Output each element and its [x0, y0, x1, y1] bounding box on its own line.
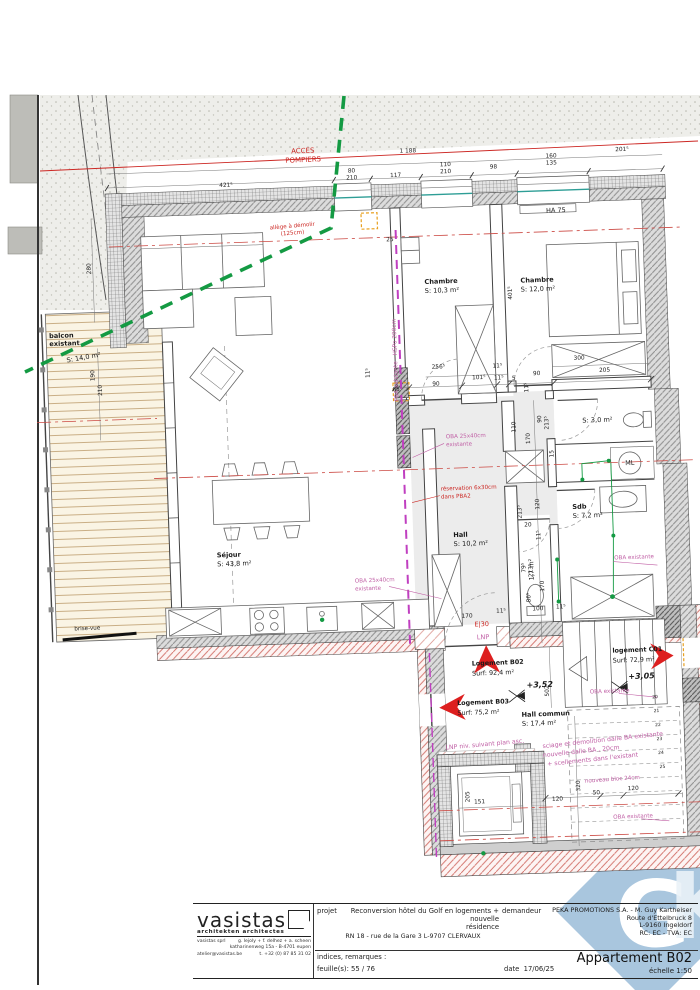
room-name: Hall: [453, 531, 468, 540]
dimension-label: 20: [652, 694, 658, 700]
shelf: [401, 237, 420, 264]
dimension-label: 117: [390, 173, 402, 179]
dimension-label: 65: [392, 387, 400, 393]
dimension-label: 110: [511, 421, 517, 433]
firm-partners: g. lejoly + f. delhez + a. scheen: [238, 939, 311, 944]
dimension-label: 151: [474, 799, 486, 805]
dimension-label: 86⁵: [525, 592, 532, 603]
notes-label: indices, remarques :: [317, 953, 499, 961]
dimension-label: 210: [346, 175, 358, 181]
bed: [546, 242, 641, 337]
dimension-label: 300: [574, 355, 586, 361]
dimension-label: 11⁵: [494, 374, 505, 381]
annotation: HA 75: [546, 206, 566, 215]
project-label: projet: [317, 907, 337, 915]
dimension-label: 23: [657, 736, 663, 742]
dimension-label: 135: [546, 160, 558, 166]
room-name: existant: [49, 339, 80, 348]
annotation: existante: [446, 441, 473, 448]
client-label: demandeur: [502, 907, 541, 915]
dimension-label: 120: [552, 796, 564, 802]
dimension-label: 280: [87, 263, 93, 275]
architect-logo-block: vasistas architekten architectes vasista…: [197, 910, 311, 957]
dimension-label: 11⁵: [496, 607, 507, 614]
dimension-label: 120: [628, 786, 640, 792]
room-area: S: 12,0 m²: [521, 284, 556, 293]
dimension-label: 160: [545, 153, 557, 159]
drawing-page: G K ACCES POMPIERS: [0, 0, 700, 990]
dimension-label: 213⁵: [543, 415, 550, 429]
dimension-label: 190: [90, 370, 96, 382]
firm-tagline: architekten architectes: [197, 929, 311, 937]
dimension-label: 205: [599, 368, 611, 374]
dimension-label: 100: [532, 606, 544, 612]
balcony: [38, 310, 172, 642]
kitchen-cabinet: [169, 608, 222, 636]
room-area: S: 43,8 m²: [217, 559, 252, 568]
annotation: LNP: [477, 633, 490, 641]
washbasin: [600, 485, 647, 513]
dimension-label: 90: [432, 382, 440, 388]
dimension-label: 210: [98, 384, 104, 396]
dimension-label: 24: [658, 750, 664, 756]
room-area: S: 7,2 m²: [573, 511, 604, 520]
dimension-label: 201⁵: [615, 146, 629, 153]
dimension-label: 50: [593, 790, 601, 796]
dimension-label: 11⁵: [364, 367, 371, 378]
dimension-label: 205: [465, 791, 471, 803]
dimension-label: 421⁵: [219, 182, 233, 189]
dimension-label: 11⁵: [535, 530, 542, 541]
dimension-label: 213⁵: [516, 504, 523, 518]
annotation: dans PBA2: [441, 494, 471, 501]
hall-cabinet: [432, 554, 462, 627]
dimension-label: 25: [660, 764, 666, 770]
dimension-label: 90: [533, 371, 541, 377]
room-area: S: 10,2 m²: [453, 539, 488, 548]
dimension-label: 101⁵: [472, 374, 486, 381]
firm-phone: t. +32 (0) 87 85 31 02: [259, 952, 311, 957]
dimension-label: 80: [348, 168, 356, 174]
project-name: Reconversion hôtel du Golf en logements …: [349, 907, 499, 931]
scale-label: échelle 1:50: [649, 967, 692, 975]
project-address: RN 18 - rue de la Gare 3 L-9707 CLERVAUX: [327, 933, 499, 940]
dimension-label: 401⁵: [507, 286, 514, 300]
dimension-label: 11⁵: [556, 603, 567, 610]
dimension-label: 90: [537, 415, 543, 423]
room-name: Chambre: [424, 277, 458, 286]
dimension-label: 110: [440, 162, 452, 168]
date-field: date 17/06/25: [504, 965, 554, 973]
room-area: S: 17,4 m²: [522, 719, 557, 728]
room-name: Séjour: [217, 551, 242, 560]
dimension-label: 170: [461, 614, 473, 620]
apartment-area: Surf: 72,9 m²: [613, 655, 656, 664]
level-label: +3,05: [628, 671, 655, 681]
firm-company: vasistas sprl: [197, 939, 226, 944]
firm-email: atelier@vasistas.be: [197, 952, 242, 957]
apartment-area: Surf: 75,2 m²: [457, 708, 500, 717]
title-block: vasistas architekten architectes vasista…: [193, 903, 698, 979]
dimension-label: 170: [540, 580, 546, 592]
dimension-label: 22: [655, 722, 661, 728]
dimension-label: 11⁵: [523, 382, 530, 393]
room-area: S: 3,0 m²: [582, 416, 613, 425]
annotation: ML: [625, 459, 635, 467]
firm-street: katharinenweg 15a - B-4701 eupen: [230, 945, 311, 950]
dimension-label: 79⁵: [520, 562, 527, 573]
dimension-label: 210: [440, 169, 452, 175]
annotation: existante: [355, 586, 382, 593]
dimension-label: 213⁵: [527, 563, 534, 577]
level-label: +3,52: [526, 680, 553, 690]
room-name: Sdb: [572, 502, 587, 511]
dimension-label: 98: [490, 164, 498, 170]
dimension-label: 21: [654, 708, 660, 714]
svg-text:POMPIERS: POMPIERS: [285, 155, 322, 165]
window-110: [421, 179, 473, 208]
firm-name: vasistas: [197, 910, 311, 929]
room-name: Chambre: [520, 275, 554, 284]
svg-text:ACCES: ACCES: [291, 146, 315, 155]
annotation: E|30: [474, 620, 489, 629]
dimension-label: 120: [535, 498, 541, 510]
dimension-label: 5: [512, 376, 516, 382]
floor-plan-canvas: G K ACCES POMPIERS: [0, 0, 700, 990]
kitchen-cabinet: [362, 602, 395, 629]
corridor-cabinet: [505, 450, 544, 483]
document-title: Appartement B02: [577, 951, 692, 966]
dimension-label: 320: [576, 780, 582, 792]
apartment-area: Surf: 92,4 m²: [472, 668, 515, 677]
window-80: [334, 183, 372, 211]
coffee-table: [235, 296, 272, 335]
dimension-label: 20: [524, 522, 532, 528]
dimension-label: 11⁵: [492, 362, 503, 369]
title-block-divider: [313, 904, 314, 978]
shower: [571, 574, 654, 619]
dimension-label: 15: [549, 450, 555, 458]
vasistas-logo-icon: [288, 910, 310, 929]
room-name: Hall commun: [521, 709, 570, 719]
dimension-label: 1 188: [399, 148, 416, 155]
cooktop: [250, 607, 285, 634]
dimension-label: 170: [526, 433, 532, 445]
annotation: brise-vue: [74, 626, 101, 633]
client-info: PEKA PROMOTIONS S.A. - M. Guy Kartheiser…: [552, 907, 692, 937]
dimension-label: 256⁵: [432, 363, 446, 370]
sheet-number: feuille(s): 55 / 76: [317, 965, 499, 973]
dimension-label: 25: [386, 237, 394, 243]
window-160: [517, 175, 590, 204]
room-area: S: 10,3 m²: [425, 286, 460, 295]
